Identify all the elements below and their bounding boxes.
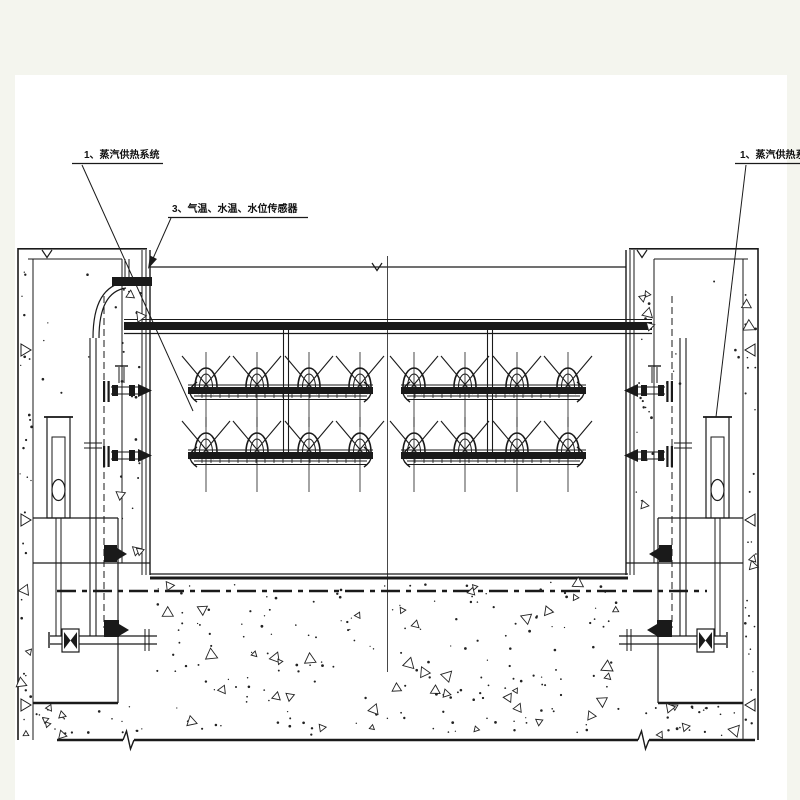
steam-header-pipe [124,322,652,330]
label-left-steam-system: 1、蒸汽供热系统 [84,148,160,161]
paper [15,75,787,800]
drawing-page: 1、蒸汽供热系统 3、气温、水温、水位传感器 1、蒸汽供热系统 [0,0,800,800]
label-sensors: 3、气温、水温、水位传感器 [172,202,299,215]
gate-steam-heating-section-drawing: 1、蒸汽供热系统 3、气温、水温、水位传感器 1、蒸汽供热系统 [0,0,800,800]
label-right-steam-system: 1、蒸汽供热系统 [740,148,800,161]
conduit-stub [112,277,152,286]
